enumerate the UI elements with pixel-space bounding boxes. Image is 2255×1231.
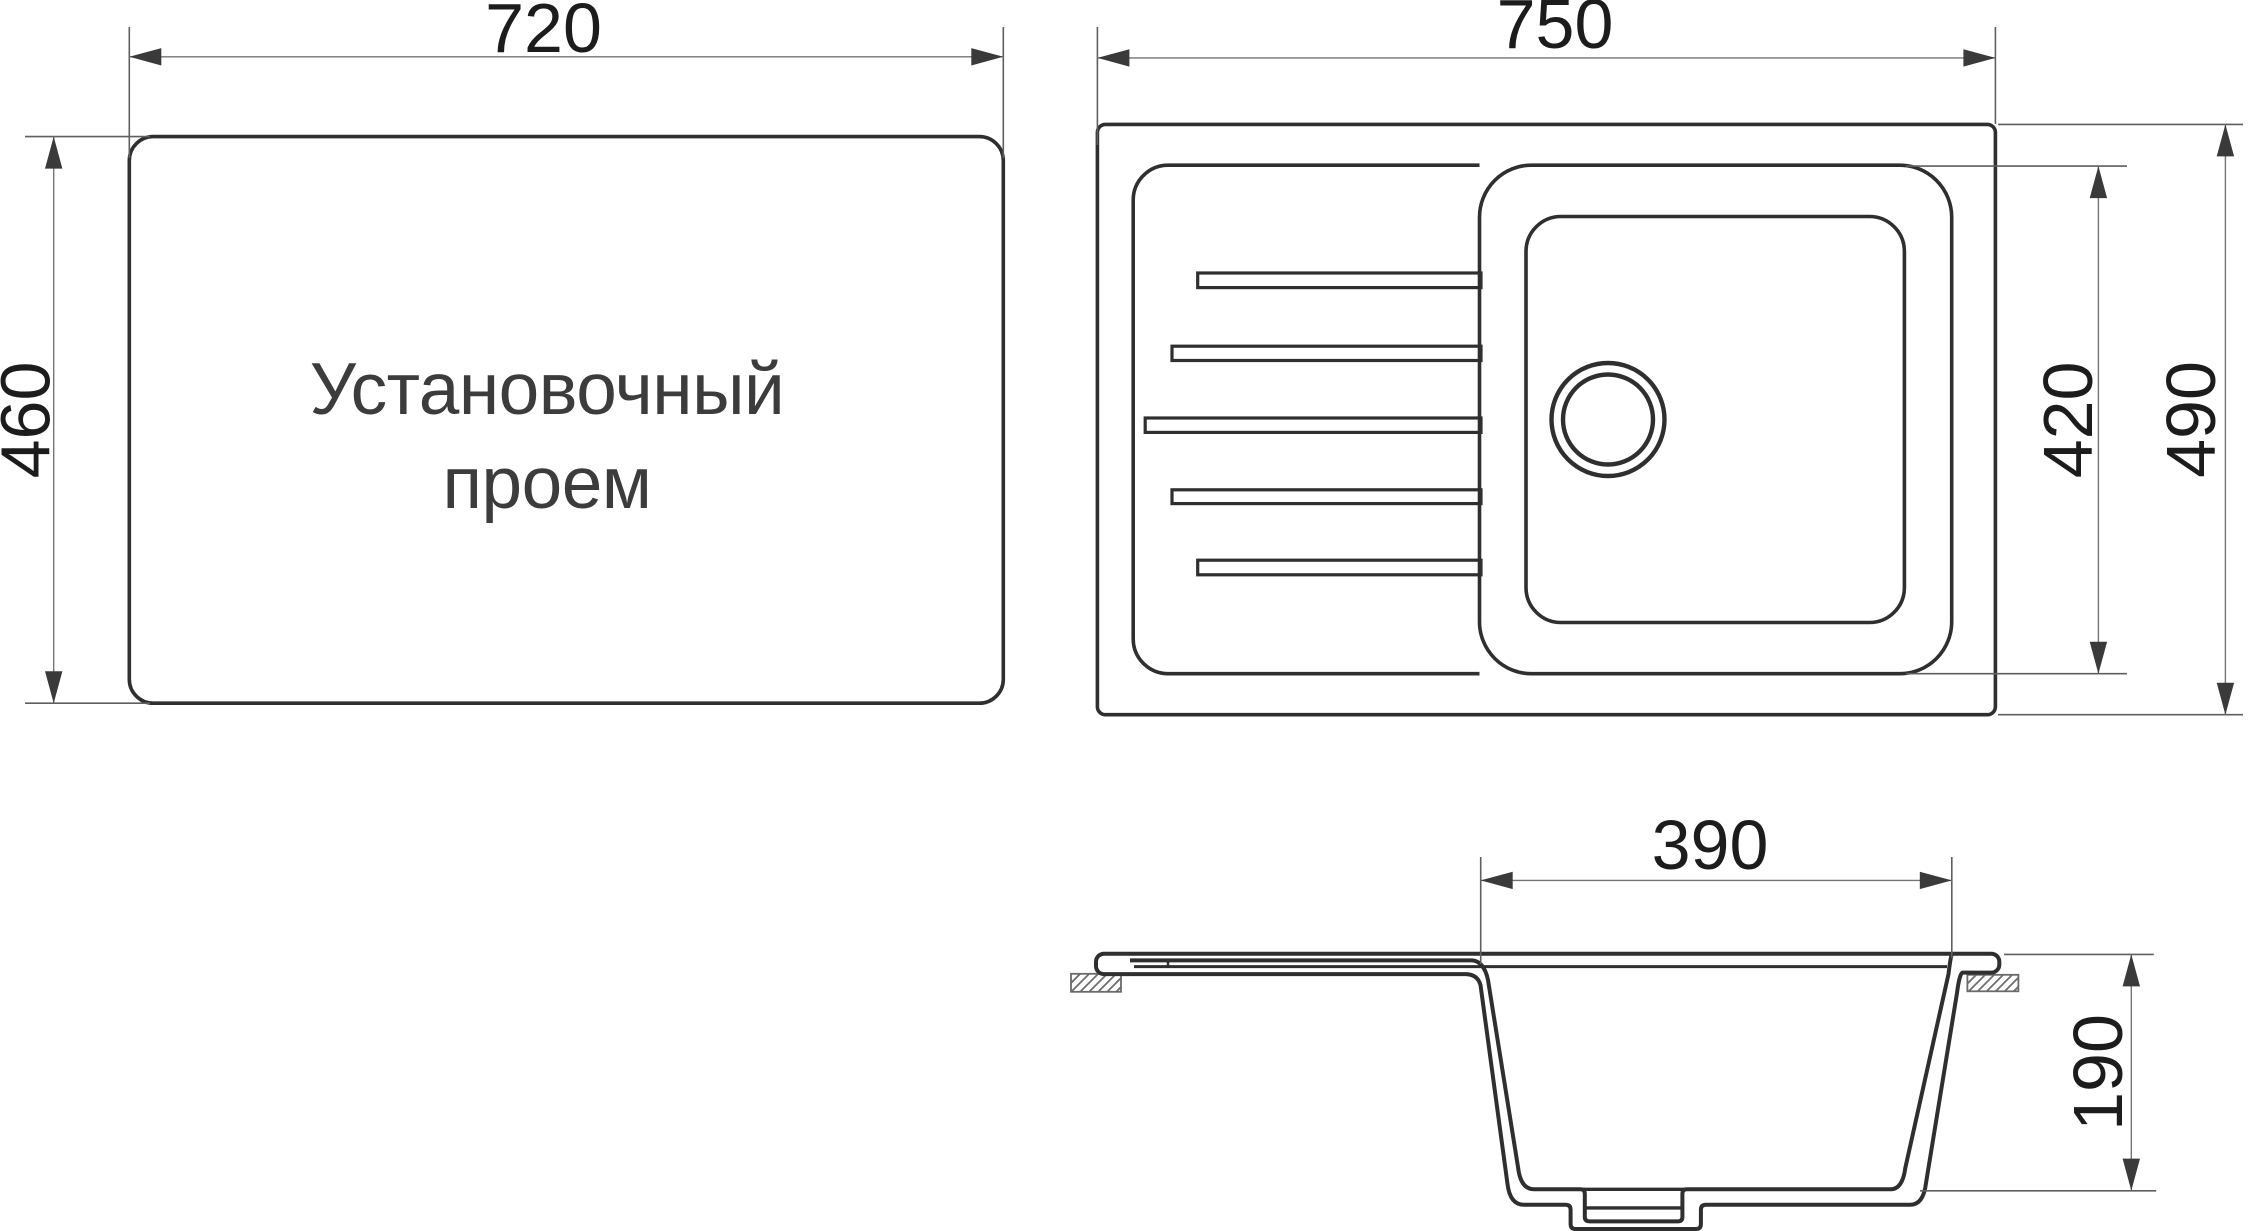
svg-text:490: 490 [2152, 361, 2230, 478]
svg-text:720: 720 [485, 0, 602, 67]
svg-text:390: 390 [1652, 806, 1769, 884]
svg-text:Установочный: Установочный [310, 349, 785, 430]
svg-text:190: 190 [2059, 1014, 2137, 1131]
svg-text:460: 460 [0, 362, 65, 479]
svg-text:420: 420 [2029, 362, 2107, 479]
svg-text:750: 750 [1497, 0, 1614, 63]
svg-text:проем: проем [442, 443, 651, 524]
